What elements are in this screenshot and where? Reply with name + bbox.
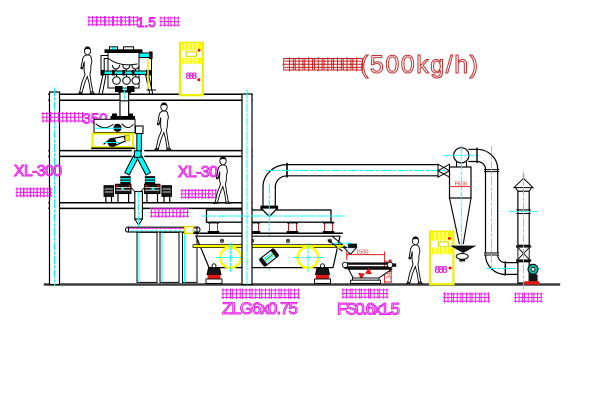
svg-text:888: 888 bbox=[186, 71, 198, 82]
svg-text:1.5: 1.5 bbox=[137, 15, 156, 30]
svg-text:ZLG6x0.75: ZLG6x0.75 bbox=[222, 299, 298, 318]
svg-text:FS0.6x1.5: FS0.6x1.5 bbox=[337, 300, 400, 319]
svg-text:1500: 1500 bbox=[356, 249, 368, 255]
svg-text:888: 888 bbox=[435, 265, 448, 276]
svg-text:XL-300: XL-300 bbox=[14, 163, 62, 180]
svg-text:F600: F600 bbox=[455, 182, 467, 188]
svg-text:(500kg/h): (500kg/h) bbox=[360, 51, 478, 79]
